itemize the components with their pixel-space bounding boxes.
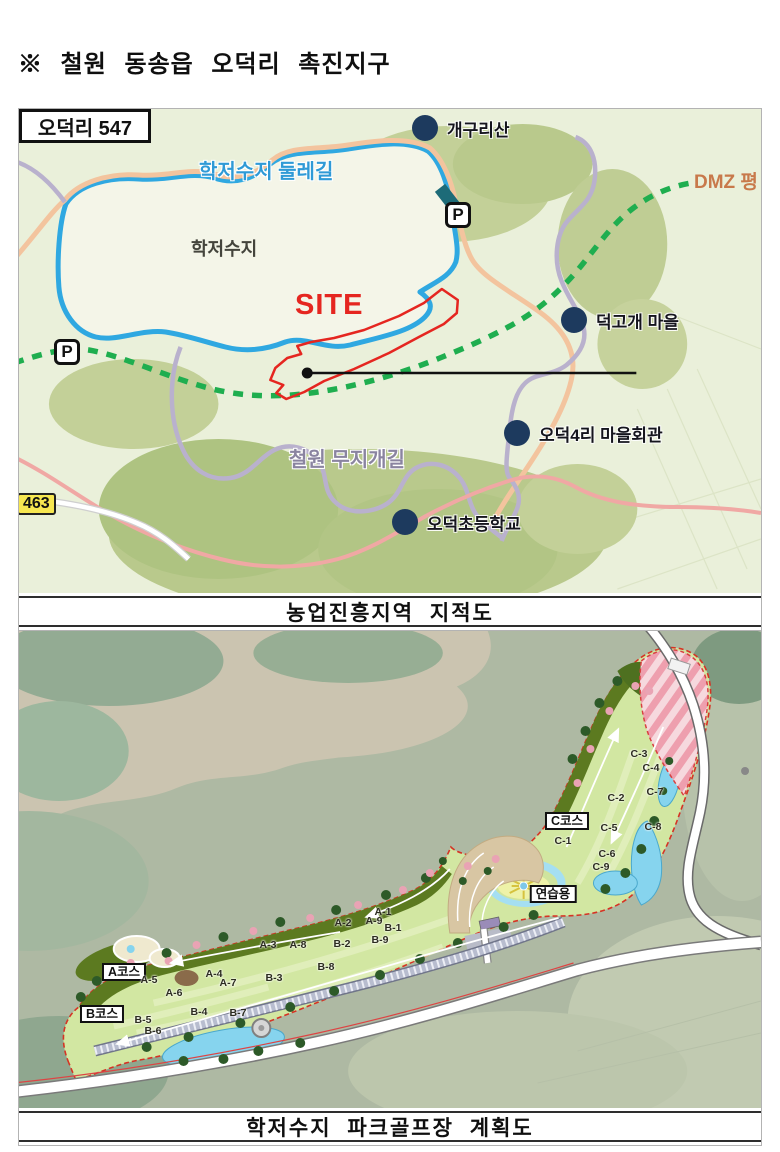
hole-label-C-8: C-8 — [645, 821, 662, 833]
hole-label-B-1: B-1 — [385, 922, 402, 934]
poi-dot — [392, 509, 418, 535]
parking-icon: P — [445, 202, 471, 228]
course-label-A코스: A코스 — [102, 963, 146, 981]
hole-label-A-5: A-5 — [141, 974, 158, 986]
page-title: ※ 철원 동송읍 오덕리 촉진지구 — [18, 44, 391, 79]
poi-dot — [561, 307, 587, 333]
poi-개구리산: 개구리산 — [412, 115, 510, 141]
hole-label-C-5: C-5 — [601, 822, 618, 834]
hole-label-C-4: C-4 — [643, 762, 660, 774]
poi-label: 오덕4리 마을회관 — [539, 421, 663, 446]
poi-오덕4리 마을회관: 오덕4리 마을회관 — [504, 420, 663, 446]
poi-dot — [412, 115, 438, 141]
map2-caption-bar: 학저수지 파크골프장 계획도 — [19, 1108, 761, 1145]
hole-label-B-7: B-7 — [230, 1007, 247, 1019]
map1-caption: 농업진흥지역 지적도 — [19, 596, 761, 627]
poi-덕고개 마을: 덕고개 마을 — [561, 307, 679, 333]
hole-label-A-9: A-9 — [366, 915, 383, 927]
parking-icon: P — [54, 339, 80, 365]
hole-label-C-1: C-1 — [555, 835, 572, 847]
hole-label-A-7: A-7 — [220, 977, 237, 989]
hole-label-A-8: A-8 — [290, 939, 307, 951]
golf-plan-figure: A코스B코스C코스연습용A-1A-2A-3A-4A-5A-6A-7A-8A-9B… — [18, 630, 762, 1146]
hole-label-C-7: C-7 — [647, 786, 664, 798]
map1-caption-bar: 농업진흥지역 지적도 — [19, 593, 761, 630]
map2-caption: 학저수지 파크골프장 계획도 — [19, 1111, 761, 1142]
cadastral-map-figure: 학저수지 둘레길 학저수지 SITE DMZ 평 철원 무지개길 463 오덕리… — [18, 108, 762, 631]
poi-label: 오덕초등학교 — [427, 510, 521, 535]
hole-label-B-3: B-3 — [266, 972, 283, 984]
poi-label: 개구리산 — [447, 116, 510, 141]
hole-label-A-2: A-2 — [335, 917, 352, 929]
cadastral-map-image: 학저수지 둘레길 학저수지 SITE DMZ 평 철원 무지개길 463 오덕리… — [19, 109, 761, 593]
poi-label: 덕고개 마을 — [596, 308, 679, 333]
course-label-C코스: C코스 — [545, 812, 589, 830]
hole-label-C-2: C-2 — [608, 792, 625, 804]
hole-label-B-6: B-6 — [145, 1025, 162, 1037]
hole-label-B-4: B-4 — [191, 1006, 208, 1018]
hole-label-B-9: B-9 — [372, 934, 389, 946]
hole-label-C-9: C-9 — [593, 861, 610, 873]
hole-label-C-6: C-6 — [599, 848, 616, 860]
poi-layer: 개구리산덕고개 마을오덕4리 마을회관오덕초등학교PP — [19, 109, 761, 593]
course-label-B코스: B코스 — [80, 1005, 124, 1023]
hole-label-A-3: A-3 — [260, 939, 277, 951]
hole-label-B-8: B-8 — [318, 961, 335, 973]
map1-label-layer: 학저수지 둘레길 학저수지 SITE DMZ 평 철원 무지개길 463 오덕리… — [19, 109, 761, 593]
hole-label-A-6: A-6 — [166, 987, 183, 999]
course-label-연습용: 연습용 — [530, 885, 577, 903]
hole-label-C-3: C-3 — [631, 748, 648, 760]
hole-label-B-2: B-2 — [334, 938, 351, 950]
poi-오덕초등학교: 오덕초등학교 — [392, 509, 521, 535]
poi-dot — [504, 420, 530, 446]
map2-label-layer: A코스B코스C코스연습용A-1A-2A-3A-4A-5A-6A-7A-8A-9B… — [19, 631, 761, 1108]
golf-plan-image: A코스B코스C코스연습용A-1A-2A-3A-4A-5A-6A-7A-8A-9B… — [19, 631, 761, 1108]
